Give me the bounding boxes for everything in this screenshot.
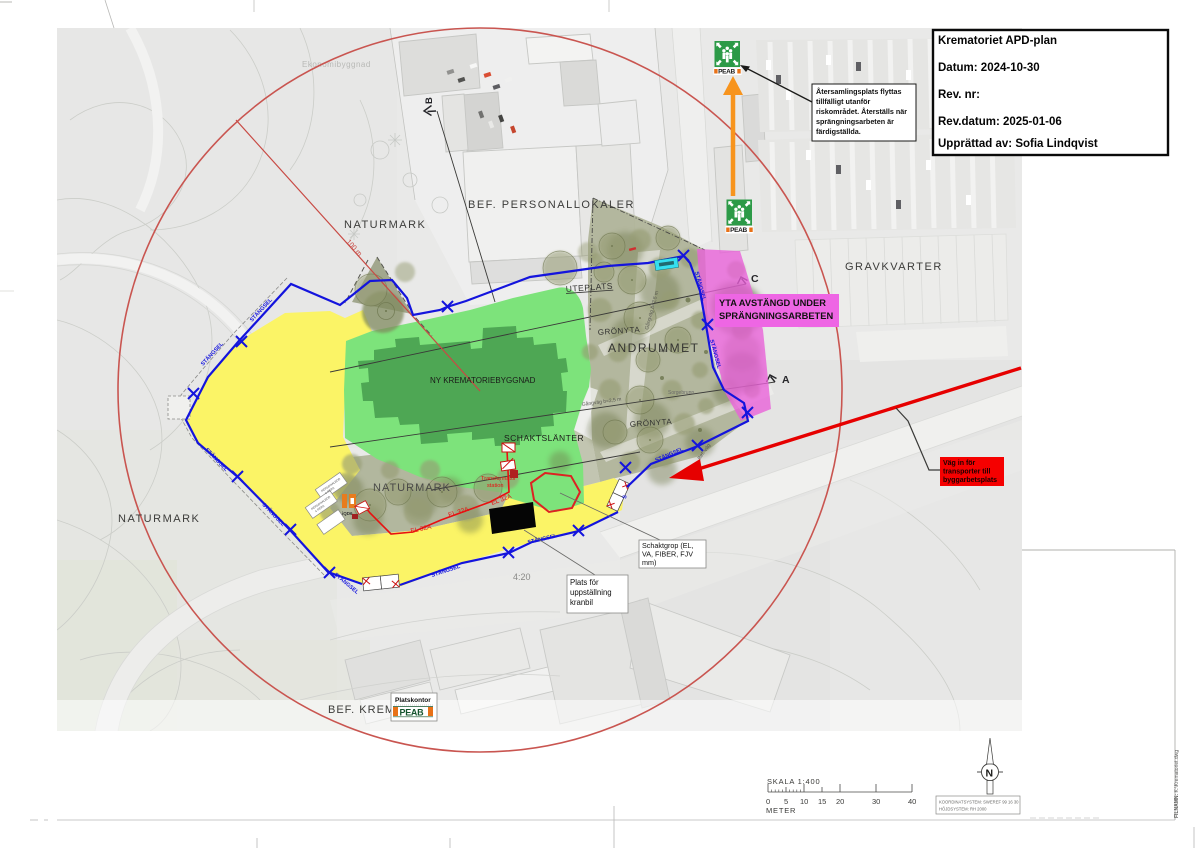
svg-text:5,5: 5,5 [660,348,667,353]
svg-text:BEF. PERSONALLOKALER: BEF. PERSONALLOKALER [468,199,635,211]
svg-text:Plats för: Plats för [570,578,599,587]
svg-text:METER: METER [766,806,796,815]
svg-text:40: 40 [908,797,916,806]
svg-text:15: 15 [818,797,826,806]
svg-text:5: 5 [784,797,788,806]
svg-text:Platskontor: Platskontor [395,697,431,704]
svg-text:SPRÄNGNINGSARBETEN: SPRÄNGNINGSARBETEN [719,311,833,321]
svg-text:GRAVKVARTER: GRAVKVARTER [845,261,943,273]
svg-text:A: A [782,374,790,386]
svg-text:tillfälligt utanför: tillfälligt utanför [816,97,871,106]
svg-text:SKALA 1:400: SKALA 1:400 [767,777,820,786]
svg-text:ANDRUMMET: ANDRUMMET [608,341,700,355]
svg-text:PEAB: PEAB [400,708,425,718]
svg-text:FILNAMN: K:\Krematoriet.dwg: FILNAMN: K:\Krematoriet.dwg [1174,750,1180,818]
svg-text:transporter till: transporter till [943,469,991,476]
svg-text:byggarbetsplats: byggarbetsplats [943,477,997,484]
svg-text:kranbil: kranbil [570,598,593,607]
svg-text:Upprättad av: Sofia Lindqvist: Upprättad av: Sofia Lindqvist [938,138,1098,150]
svg-text:KOORDINATSYSTEM: SWEREF 99 16: KOORDINATSYSTEM: SWEREF 99 16 30 [939,800,1019,805]
svg-text:C: C [751,273,759,285]
svg-text:riskområdet. Återställs när: riskområdet. Återställs när [816,107,907,116]
svg-text:PEAB: PEAB [718,69,735,76]
svg-text:N: N [986,768,994,780]
svg-text:NATURMARK: NATURMARK [118,513,200,525]
svg-text:Sorgebrunn: Sorgebrunn [668,390,694,396]
svg-text:mm): mm) [642,558,656,567]
svg-text:SCHAKTSLÄNTER: SCHAKTSLÄNTER [504,433,584,443]
svg-text:färdigställda.: färdigställda. [816,127,861,136]
svg-text:10: 10 [800,797,808,806]
svg-text:NATURMARK: NATURMARK [344,219,426,231]
svg-text:0: 0 [766,797,770,806]
svg-text:station: station [487,483,503,489]
svg-text:PEAB: PEAB [730,227,747,234]
svg-text:4:20: 4:20 [513,572,531,582]
svg-text:Rev. nr:: Rev. nr: [938,89,980,101]
svg-text:HÖJDSYSTEM: RH 2000: HÖJDSYSTEM: RH 2000 [939,807,987,812]
svg-text:iQD6: iQD6 [342,511,353,516]
svg-text:20: 20 [836,797,844,806]
svg-text:Datum: 2024-10-30: Datum: 2024-10-30 [938,62,1040,74]
svg-text:Krematoriet APD-plan: Krematoriet APD-plan [938,35,1057,47]
svg-text:Väg in för: Väg in för [943,460,976,467]
svg-text:Återsamlingsplats flyttas: Återsamlingsplats flyttas [816,87,901,96]
svg-text:B: B [424,97,435,104]
svg-text:NY KREMATORIEBYGGNAD: NY KREMATORIEBYGGNAD [430,376,536,385]
svg-text:uppställning: uppställning [570,588,612,597]
svg-text:30: 30 [872,797,880,806]
svg-text:YTA AVSTÄNGD UNDER: YTA AVSTÄNGD UNDER [719,298,826,308]
svg-text:sprängningsarbeten är: sprängningsarbeten är [816,117,894,126]
svg-text:NATURMARK: NATURMARK [373,482,451,494]
svg-text:Rev.datum: 2025-01-06: Rev.datum: 2025-01-06 [938,116,1062,128]
